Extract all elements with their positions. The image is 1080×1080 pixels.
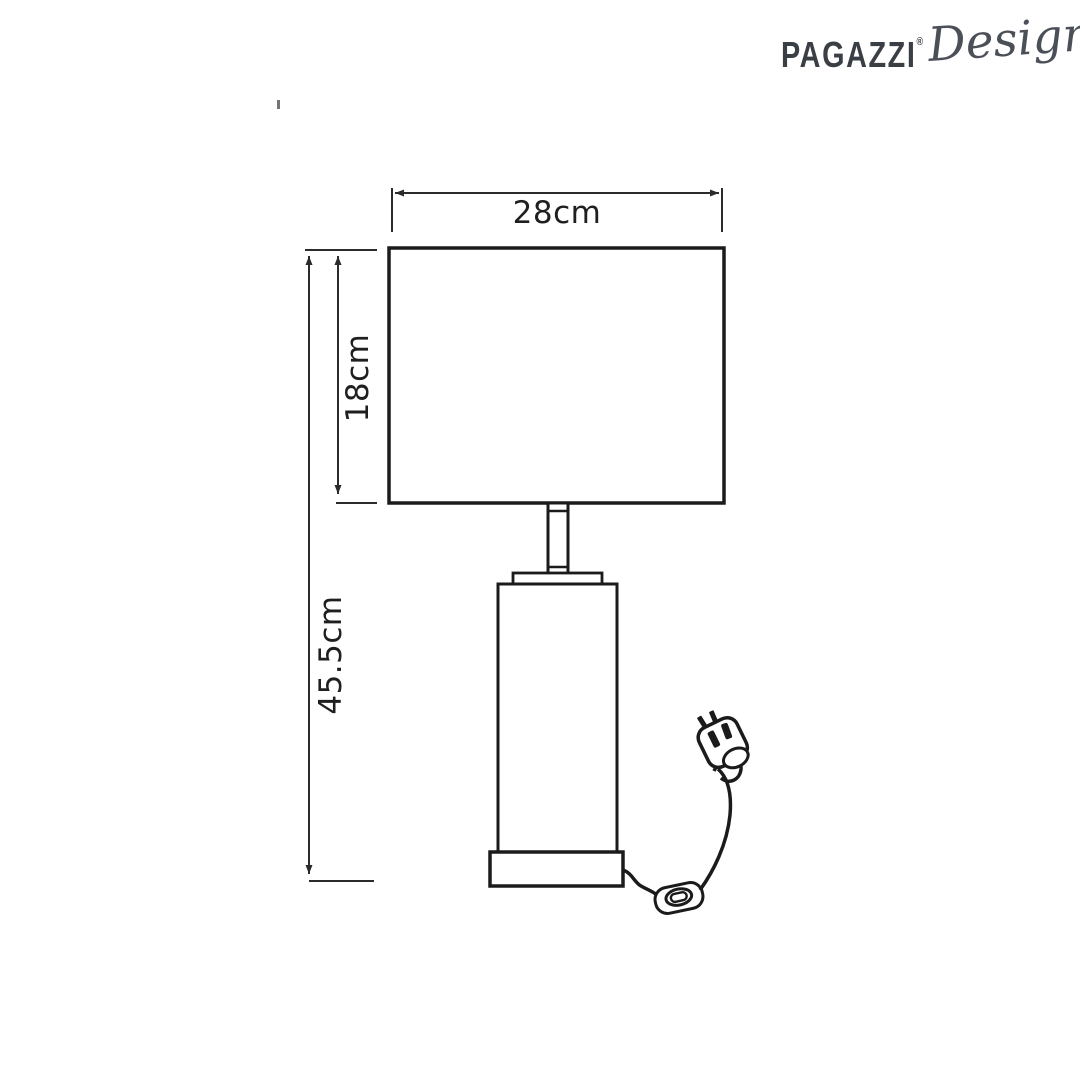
uk-plug xyxy=(689,703,754,777)
lamp-neck xyxy=(548,503,568,575)
dim-total-height-label: 45.5cm xyxy=(313,595,349,714)
product-dimension-diagram: PAGAZZI® Design 28cm 18cm 45.5cm xyxy=(0,0,1080,1080)
lamp-body xyxy=(498,584,617,852)
dim-width-label: 28cm xyxy=(513,195,602,231)
plug-earth-pin-right-face xyxy=(709,710,719,724)
dim-shade-height-label: 18cm xyxy=(340,334,376,423)
lamp-line-drawing: 28cm 18cm 45.5cm xyxy=(0,0,1080,1080)
lamp-shade xyxy=(389,248,724,503)
lamp-cap-plate xyxy=(513,573,602,584)
power-cable-base-segment xyxy=(623,870,657,895)
switch-rocker xyxy=(670,891,687,902)
power-cable-plug-segment xyxy=(700,769,730,890)
lamp-base xyxy=(490,852,623,886)
inline-switch xyxy=(653,880,705,915)
